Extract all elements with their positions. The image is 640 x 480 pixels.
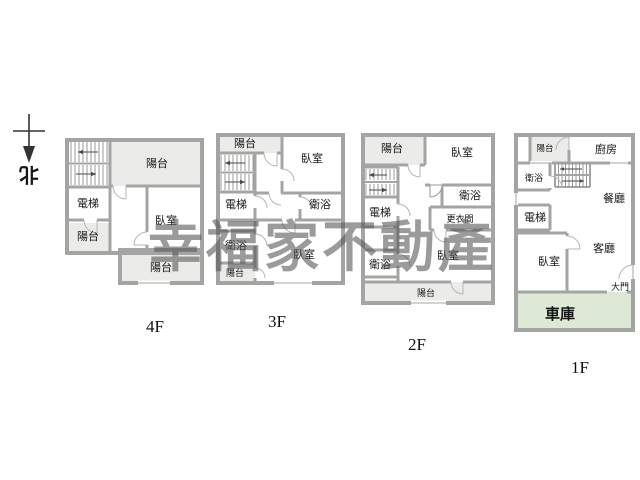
room-label-elevator: 電梯 (77, 197, 99, 210)
floorplan-sheet: 北 (0, 0, 640, 480)
floor-label-2f: 2F (393, 335, 441, 355)
room-label-balcony: 陽台 (417, 287, 435, 298)
floor-label-1f: 1F (556, 358, 604, 378)
agency-watermark: 幸福家不動產 (148, 202, 496, 282)
north-compass: 北 (6, 110, 58, 194)
floor-plan-1f: 陽台 廚房 衛浴 餐廳 電梯 客廳 臥室 大門 車庫 (512, 132, 638, 336)
room-label-living: 客廳 (593, 241, 615, 255)
room-label-balcony: 陽台 (381, 141, 403, 155)
room-label-bedroom: 臥室 (538, 254, 560, 268)
room-label-gate: 大門 (611, 281, 629, 292)
floor-label-3f: 3F (253, 312, 301, 332)
room-label-balcony: 陽台 (234, 136, 256, 150)
room-label-garage: 車庫 (545, 305, 575, 323)
room-label-kitchen: 廚房 (595, 142, 617, 156)
room-label-bath: 衛浴 (525, 172, 543, 183)
room-label-bedroom: 臥室 (301, 151, 323, 165)
north-arrowhead (23, 146, 35, 163)
room-label-bedroom: 臥室 (451, 145, 473, 159)
room-label-balcony: 陽台 (77, 229, 99, 243)
north-label: 北 (19, 163, 39, 186)
room-label-bath: 衛浴 (459, 189, 481, 202)
room-label-balcony: 陽台 (146, 156, 168, 170)
room-label-balcony: 陽台 (536, 143, 553, 153)
room-label-elevator: 電梯 (524, 211, 546, 224)
floor-label-4f: 4F (131, 317, 179, 337)
room-label-dining: 餐廳 (603, 191, 625, 205)
